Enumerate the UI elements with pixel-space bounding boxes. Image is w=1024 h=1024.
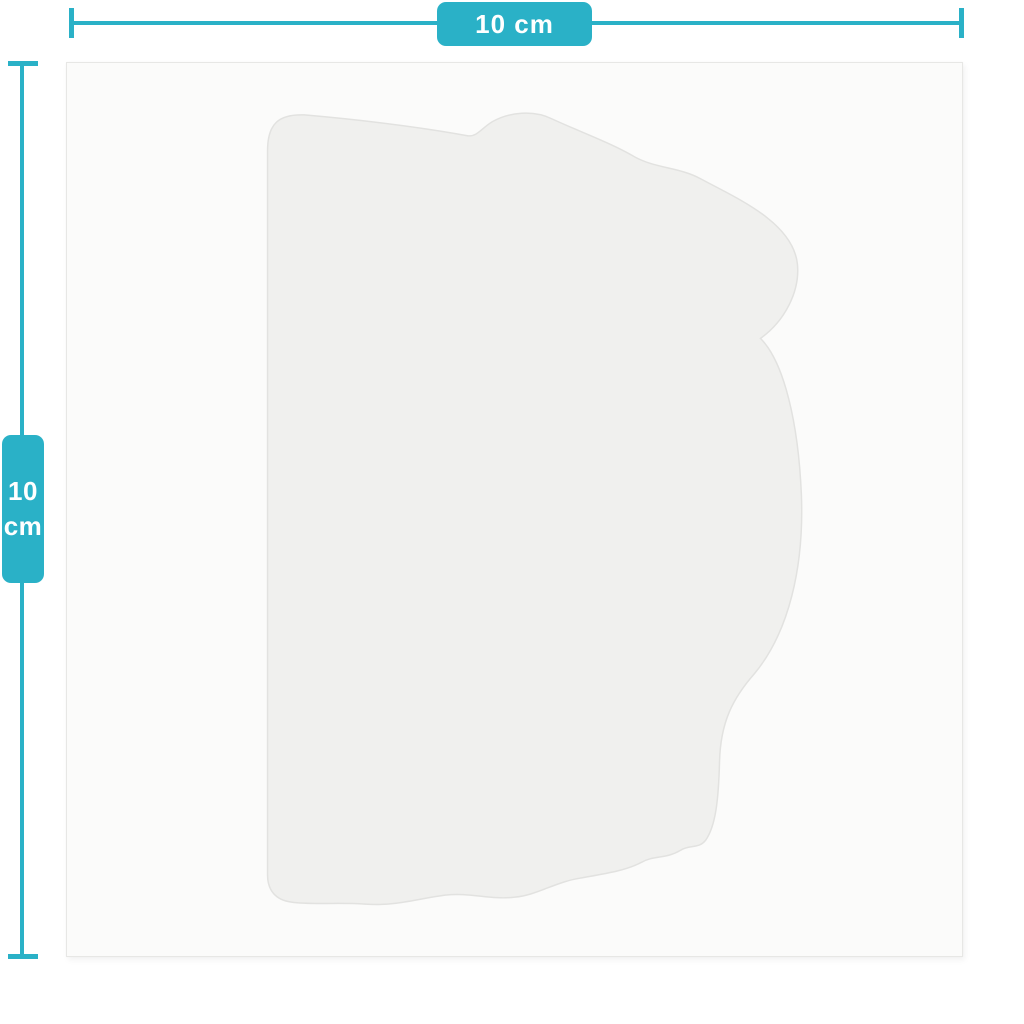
die-cut-shape-canvas [67,63,962,956]
width-dimension-left-tick [69,8,74,38]
height-measurement-badge: 10 cm [2,435,44,583]
height-measurement-value: 10 [8,474,38,509]
height-measurement-unit: cm [4,509,43,544]
width-measurement-label: 10 cm [475,9,554,40]
sticker-sheet [66,62,963,957]
die-cut-shape-outline [268,113,802,904]
height-dimension-top-tick [8,61,38,66]
height-dimension-bottom-tick [8,954,38,959]
product-dimensions-figure: 10 cm 10 cm [0,0,1024,1024]
width-measurement-badge: 10 cm [437,2,592,46]
width-dimension-right-tick [959,8,964,38]
